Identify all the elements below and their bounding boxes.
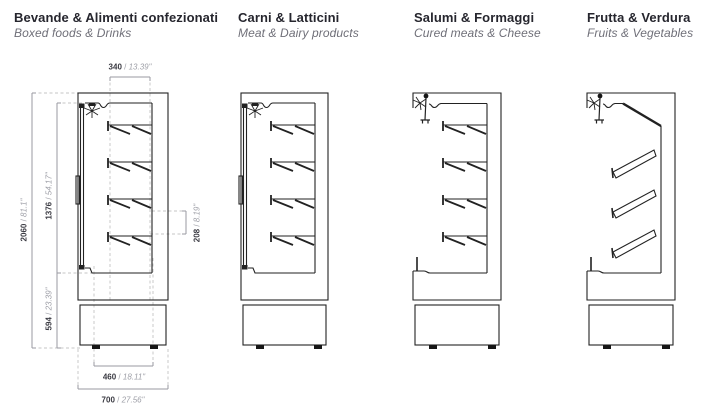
shelf — [108, 232, 152, 245]
interior-floor — [85, 268, 152, 273]
shelves — [108, 121, 152, 245]
fan-icon — [247, 103, 263, 119]
glass-door — [76, 104, 85, 270]
interior-floor — [413, 271, 487, 273]
tilted-shelf — [612, 190, 656, 218]
foot — [150, 345, 158, 349]
shelves — [443, 121, 487, 245]
foot — [314, 345, 322, 349]
dim-total-depth: 700 / 27.56" — [102, 396, 145, 405]
guide-lines — [33, 77, 186, 389]
base-plinth — [589, 305, 673, 345]
foot — [662, 345, 670, 349]
tilted-shelf — [612, 230, 656, 258]
foot — [92, 345, 100, 349]
foot — [429, 345, 437, 349]
glass-door — [239, 104, 248, 270]
cabinet-unit-4 — [587, 93, 675, 349]
spec-sheet: Bevande & Alimenti confezionati Boxed fo… — [0, 0, 701, 412]
shelf — [443, 158, 487, 171]
dim-display-height: 1376 / 54.17" — [45, 172, 54, 219]
shelf — [271, 158, 315, 171]
cabinet-unit-2 — [239, 93, 328, 349]
temperature-probe-icon — [413, 94, 430, 124]
cabinet-body — [78, 93, 168, 300]
tilted-shelf — [612, 150, 656, 178]
canopy-duct — [623, 104, 661, 127]
shelf — [108, 121, 152, 134]
fan-icon — [84, 103, 100, 119]
shelf — [271, 121, 315, 134]
foot — [488, 345, 496, 349]
foot — [256, 345, 264, 349]
dim-total-height: 2060 / 81.1" — [20, 199, 29, 242]
cabinet-diagrams — [0, 0, 701, 412]
dimension-lines — [32, 77, 186, 389]
interior-floor — [587, 271, 661, 273]
shelf — [443, 232, 487, 245]
interior-floor — [248, 268, 315, 273]
temperature-probe-icon — [587, 94, 604, 124]
interior-top-line — [429, 104, 487, 108]
cabinet-unit-1 — [76, 93, 168, 349]
shelf — [271, 195, 315, 208]
shelf — [443, 195, 487, 208]
shelf — [443, 121, 487, 134]
dim-base-width: 460 / 18.11" — [103, 373, 145, 382]
cabinet-unit-3 — [413, 93, 501, 349]
dim-shelf-gap: 208 / 8.19" — [193, 204, 202, 242]
cabinet-body — [413, 93, 501, 300]
tilted-shelves — [612, 150, 656, 258]
interior-top-line — [603, 104, 623, 108]
foot — [603, 345, 611, 349]
cabinet-body — [587, 93, 675, 300]
shelf — [108, 195, 152, 208]
shelf — [108, 158, 152, 171]
base-plinth — [415, 305, 499, 345]
dim-top-width: 340 / 13.39" — [109, 63, 152, 72]
dim-base-height: 594 / 23.39" — [45, 288, 54, 331]
shelf — [271, 232, 315, 245]
shelves — [271, 121, 315, 245]
base-plinth — [243, 305, 326, 345]
